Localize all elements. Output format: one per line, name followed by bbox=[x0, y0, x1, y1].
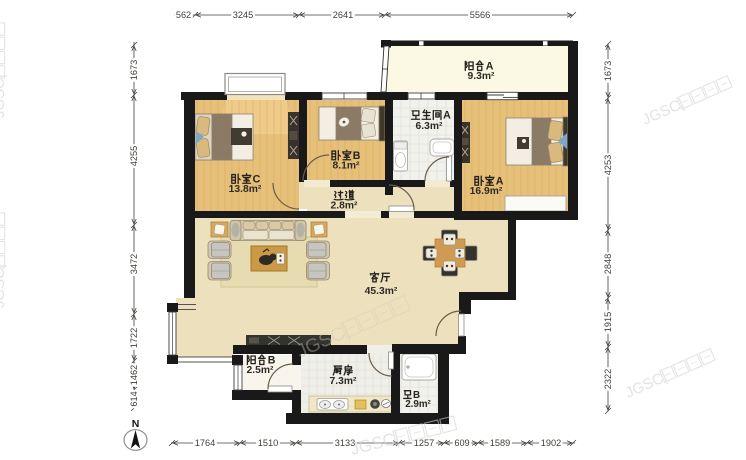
svg-text:6.3m²: 6.3m² bbox=[416, 121, 443, 132]
svg-text:7.3m²: 7.3m² bbox=[330, 376, 357, 387]
svg-text:2848: 2848 bbox=[603, 254, 613, 274]
svg-text:4253: 4253 bbox=[603, 155, 613, 175]
svg-text:2641: 2641 bbox=[333, 10, 353, 20]
svg-text:2.9m²: 2.9m² bbox=[405, 399, 431, 410]
svg-text:1764: 1764 bbox=[195, 438, 215, 448]
svg-text:JGSC|: JGSC| bbox=[0, 74, 8, 118]
svg-text:N: N bbox=[132, 418, 140, 430]
svg-text:16.9m²: 16.9m² bbox=[470, 186, 503, 197]
svg-text:1915: 1915 bbox=[603, 312, 613, 332]
svg-text:1462: 1462 bbox=[129, 365, 139, 385]
svg-text:A: A bbox=[443, 110, 451, 122]
svg-text:4255: 4255 bbox=[129, 146, 139, 166]
svg-text:9.3m²: 9.3m² bbox=[468, 71, 495, 82]
svg-text:8.1m²: 8.1m² bbox=[333, 161, 360, 172]
svg-text:JGSC|: JGSC| bbox=[0, 264, 8, 308]
svg-text:45.3m²: 45.3m² bbox=[365, 286, 398, 297]
svg-text:1673: 1673 bbox=[129, 60, 139, 80]
svg-text:3472: 3472 bbox=[129, 254, 139, 274]
svg-text:1902: 1902 bbox=[541, 438, 561, 448]
svg-text:562: 562 bbox=[176, 10, 191, 20]
svg-text:2.8m²: 2.8m² bbox=[331, 201, 358, 212]
svg-text:2.5m²: 2.5m² bbox=[247, 365, 274, 376]
svg-text:5566: 5566 bbox=[470, 10, 490, 20]
svg-text:614: 614 bbox=[129, 391, 139, 406]
svg-text:1510: 1510 bbox=[258, 438, 278, 448]
svg-text:1673: 1673 bbox=[603, 61, 613, 81]
svg-text:13.8m²: 13.8m² bbox=[229, 184, 262, 195]
svg-text:1589: 1589 bbox=[490, 438, 510, 448]
svg-text:2322: 2322 bbox=[603, 369, 613, 389]
svg-text:609: 609 bbox=[454, 438, 469, 448]
svg-text:3245: 3245 bbox=[233, 10, 253, 20]
svg-text:1722: 1722 bbox=[129, 328, 139, 348]
